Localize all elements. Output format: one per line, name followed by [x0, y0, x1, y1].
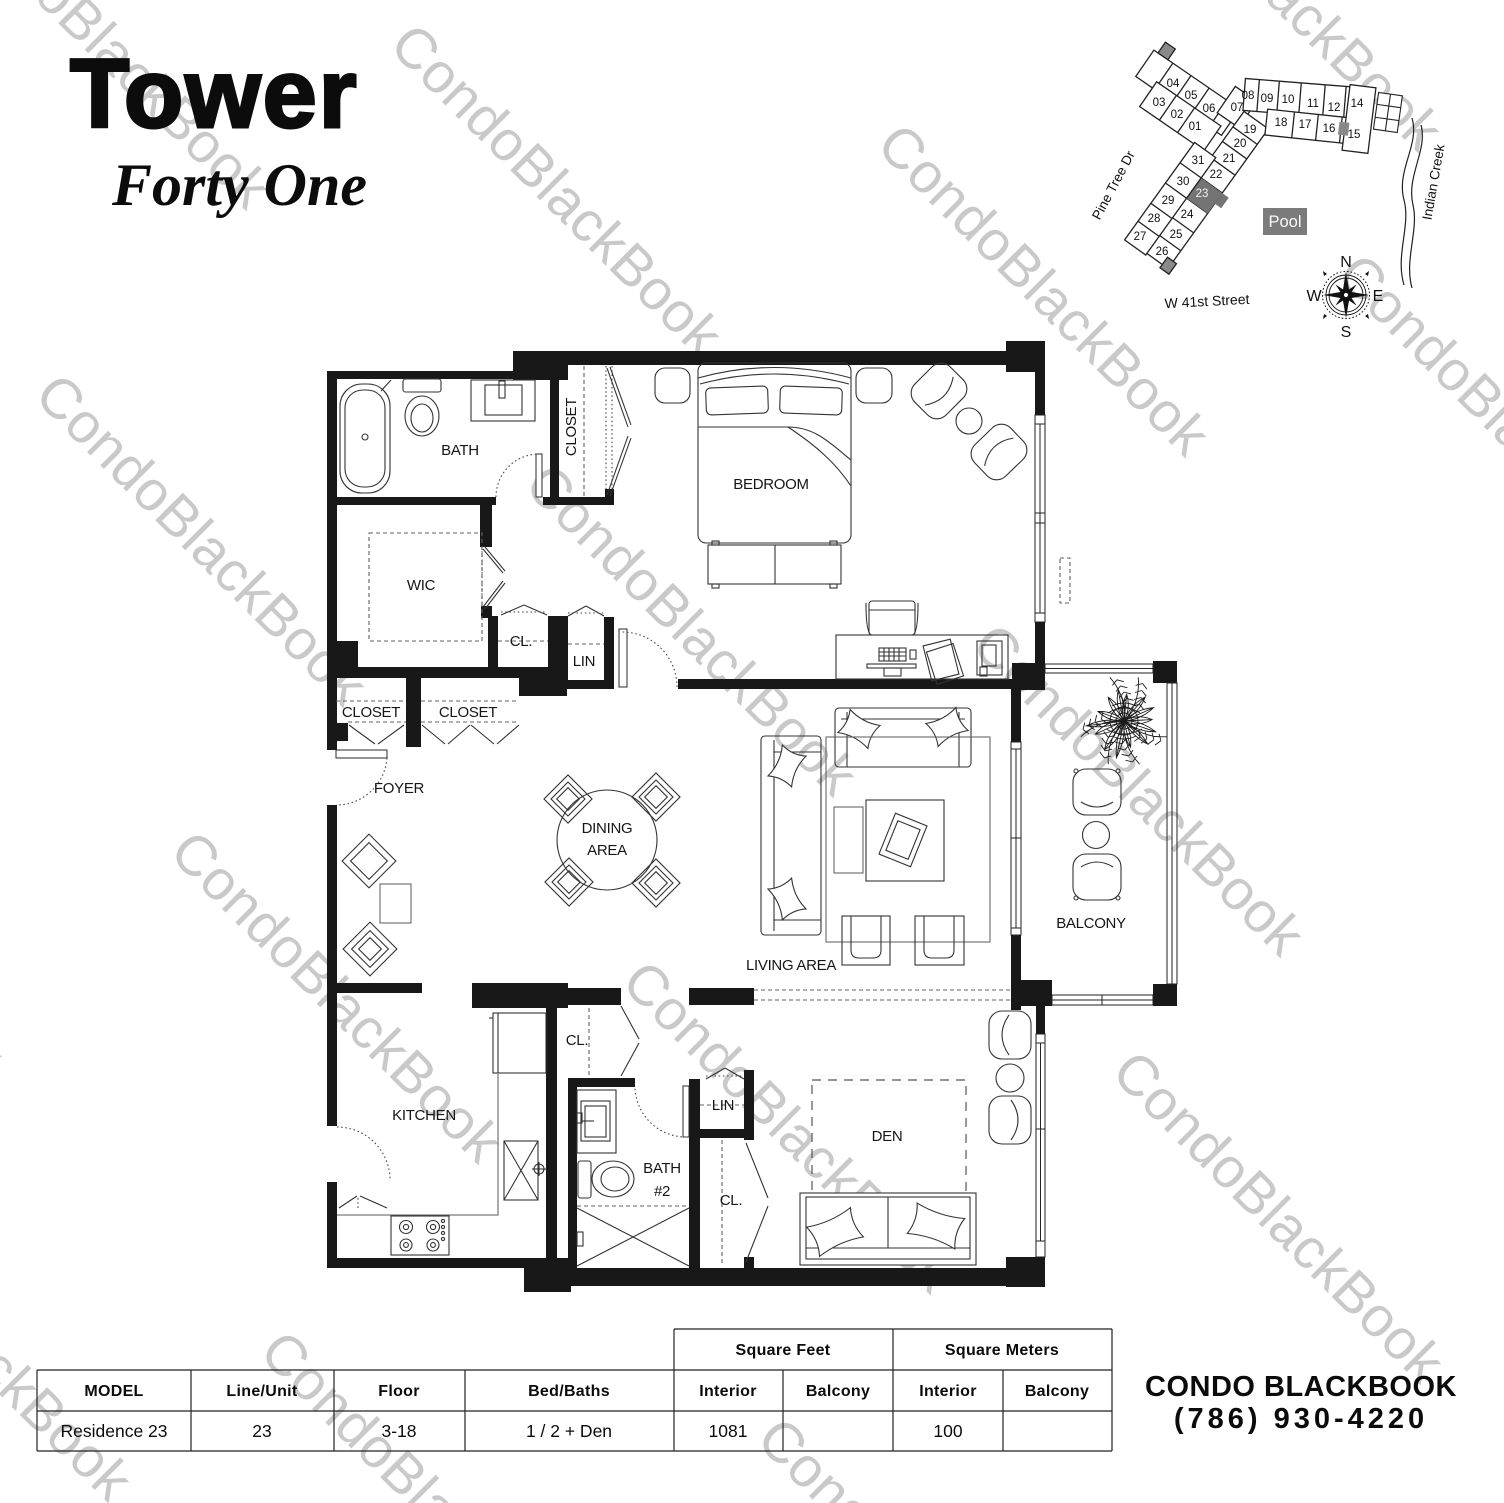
svg-text:22: 22 [1210, 169, 1223, 181]
svg-text:CLOSET: CLOSET [439, 704, 497, 721]
svg-text:DEN: DEN [872, 1128, 903, 1145]
svg-text:W: W [1306, 288, 1322, 305]
svg-text:20: 20 [1234, 138, 1247, 150]
svg-text:01: 01 [1189, 121, 1202, 133]
svg-text:15: 15 [1348, 129, 1361, 141]
svg-text:Balcony: Balcony [1025, 1383, 1089, 1400]
svg-text:31: 31 [1192, 155, 1205, 167]
svg-text:30: 30 [1177, 176, 1190, 188]
svg-text:04: 04 [1167, 78, 1180, 90]
svg-text:AREA: AREA [587, 842, 627, 859]
svg-text:Floor: Floor [378, 1383, 420, 1400]
svg-text:Tower: Tower [70, 39, 358, 148]
svg-text:N: N [1340, 254, 1352, 271]
svg-text:05: 05 [1185, 90, 1198, 102]
svg-text:Square Feet: Square Feet [736, 1342, 831, 1359]
svg-text:E: E [1373, 288, 1384, 305]
svg-text:MODEL: MODEL [84, 1383, 143, 1400]
svg-text:WIC: WIC [407, 577, 436, 594]
svg-text:LIVING AREA: LIVING AREA [746, 957, 836, 974]
svg-text:CLOSET: CLOSET [563, 398, 580, 456]
svg-text:CL.: CL. [720, 1192, 742, 1209]
svg-text:1 / 2 + Den: 1 / 2 + Den [526, 1421, 612, 1441]
svg-text:16: 16 [1323, 123, 1336, 135]
svg-text:FOYER: FOYER [374, 780, 425, 797]
svg-text:24: 24 [1181, 209, 1194, 221]
svg-text:08: 08 [1242, 90, 1255, 102]
svg-text:BEDROOM: BEDROOM [733, 476, 808, 493]
svg-text:23: 23 [252, 1421, 271, 1441]
svg-text:Interior: Interior [919, 1383, 977, 1400]
svg-text:BALCONY: BALCONY [1056, 915, 1126, 932]
svg-text:Square Meters: Square Meters [945, 1342, 1059, 1359]
svg-text:21: 21 [1223, 153, 1236, 165]
svg-text:BATH: BATH [441, 442, 479, 459]
svg-text:06: 06 [1203, 103, 1216, 115]
svg-text:Pool: Pool [1268, 213, 1301, 231]
svg-text:18: 18 [1275, 117, 1288, 129]
svg-text:23: 23 [1196, 188, 1209, 200]
svg-text:11: 11 [1307, 98, 1319, 110]
svg-text:14: 14 [1351, 98, 1364, 110]
svg-text:S: S [1341, 324, 1352, 341]
svg-text:CONDO BLACKBOOK: CONDO BLACKBOOK [1145, 1371, 1457, 1403]
svg-text:19: 19 [1244, 124, 1257, 136]
svg-text:Residence 23: Residence 23 [60, 1421, 167, 1441]
svg-text:CL.: CL. [510, 633, 532, 650]
svg-text:17: 17 [1299, 119, 1312, 131]
svg-text:Bed/Baths: Bed/Baths [528, 1383, 610, 1400]
svg-text:26: 26 [1156, 246, 1169, 258]
svg-text:Line/Unit: Line/Unit [226, 1383, 298, 1400]
svg-text:LIN: LIN [712, 1097, 734, 1114]
svg-text:DINING: DINING [582, 820, 633, 837]
svg-text:#2: #2 [654, 1183, 670, 1200]
svg-text:03: 03 [1153, 97, 1166, 109]
svg-text:02: 02 [1171, 109, 1184, 121]
svg-text:07: 07 [1231, 102, 1244, 114]
svg-text:25: 25 [1170, 229, 1183, 241]
svg-text:BATH: BATH [643, 1160, 681, 1177]
svg-text:Forty One: Forty One [111, 152, 367, 218]
svg-text:28: 28 [1148, 213, 1161, 225]
svg-text:12: 12 [1328, 102, 1341, 114]
svg-text:KITCHEN: KITCHEN [392, 1107, 456, 1124]
svg-text:3-18: 3-18 [381, 1421, 416, 1441]
svg-text:27: 27 [1134, 231, 1147, 243]
svg-text:Interior: Interior [699, 1383, 757, 1400]
svg-text:Balcony: Balcony [806, 1383, 870, 1400]
svg-text:1081: 1081 [709, 1421, 748, 1441]
svg-text:09: 09 [1261, 93, 1274, 105]
svg-text:LIN: LIN [573, 653, 595, 670]
svg-text:10: 10 [1282, 94, 1295, 106]
svg-text:CLOSET: CLOSET [342, 704, 400, 721]
svg-text:100: 100 [933, 1421, 962, 1441]
svg-text:CL.: CL. [566, 1032, 588, 1049]
svg-text:(786) 930-4220: (786) 930-4220 [1174, 1403, 1428, 1435]
svg-text:29: 29 [1162, 195, 1175, 207]
